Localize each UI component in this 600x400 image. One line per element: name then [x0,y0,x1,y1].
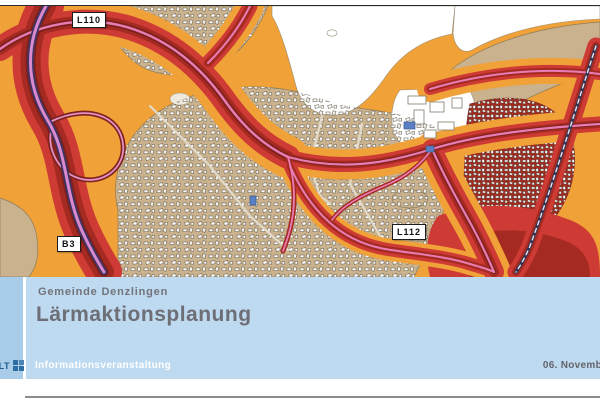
event-date-label: 06. Novemb [543,360,600,371]
company-window-icon [13,360,24,371]
event-type-label: Informationsveranstaltung [35,360,171,371]
company-logo-text: ULT [0,361,10,371]
presentation-slide: L110 B3 L112 Gemeinde Denzlingen Lärmakt… [0,0,600,400]
road-label-l110: L110 [72,12,106,28]
slide-footer: Gemeinde Denzlingen Lärmaktionsplanung U… [0,277,600,379]
noise-map [0,5,600,277]
bottom-divider-line [25,396,600,398]
municipality-label: Gemeinde Denzlingen [38,286,168,298]
slide-title: Lärmaktionsplanung [36,303,252,327]
road-label-l112: L112 [392,224,426,240]
road-label-b3: B3 [57,236,81,252]
noise-map-graphic [0,6,600,277]
